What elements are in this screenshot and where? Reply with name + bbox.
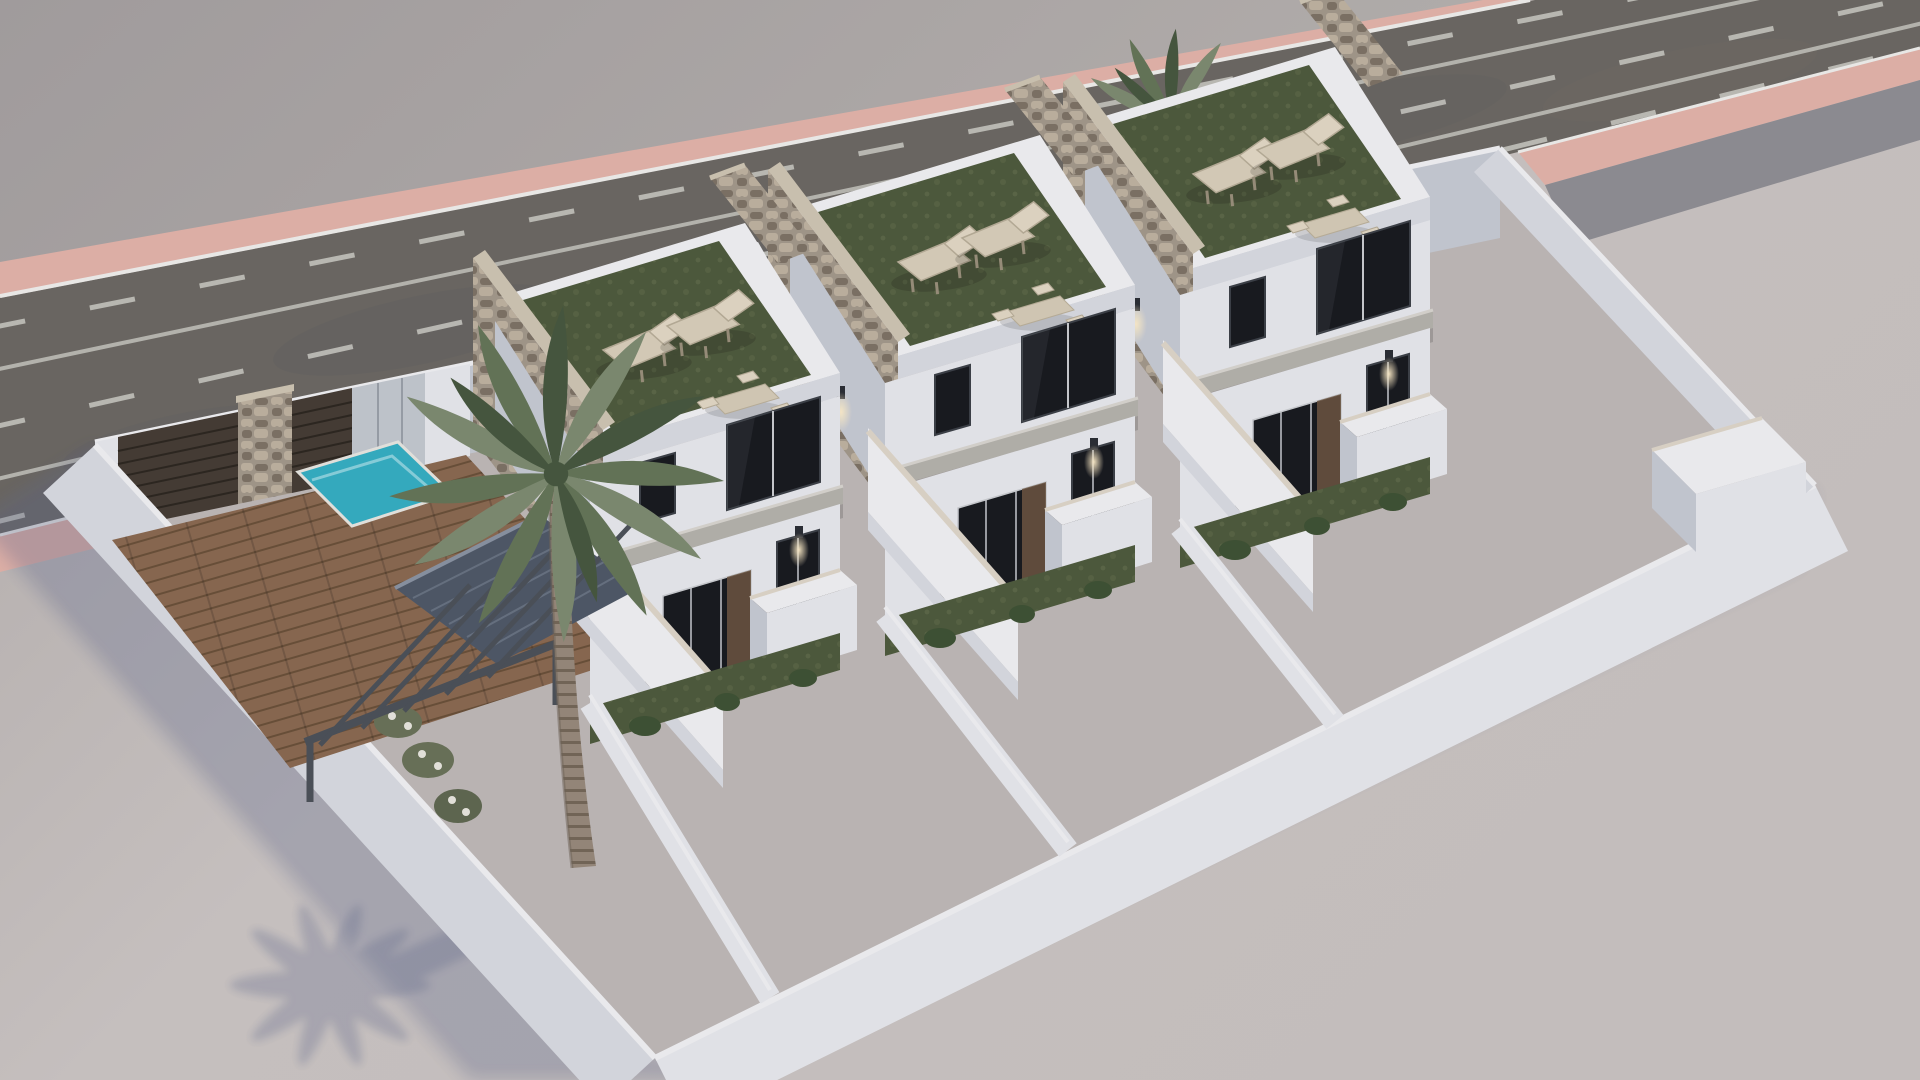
dusk-tint: [0, 0, 1920, 1080]
architectural-render: [0, 0, 1920, 1080]
render-canvas: [0, 0, 1920, 1080]
